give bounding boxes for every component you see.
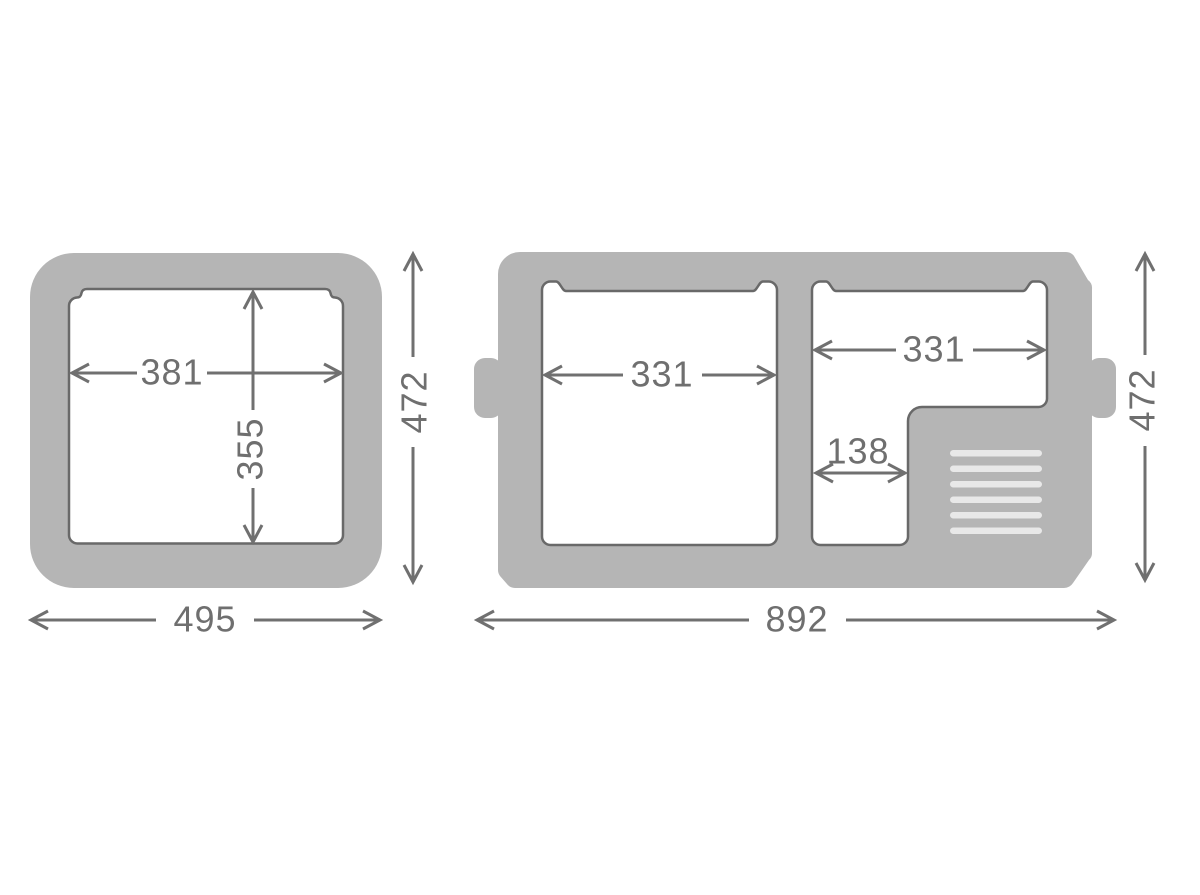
dim-label-right-outer-width: 892 bbox=[765, 599, 828, 640]
right-view-right-latch bbox=[1088, 358, 1116, 418]
left-view-cavity bbox=[69, 289, 343, 544]
dim-label-right-outer-height: 472 bbox=[1122, 368, 1163, 431]
dimension-diagram: 381 355 472 495 bbox=[0, 0, 1200, 895]
dim-label-outer-height: 472 bbox=[394, 370, 435, 433]
dim-label-inner-width: 381 bbox=[140, 352, 203, 393]
dimension-left-outer-width: 495 bbox=[31, 599, 380, 640]
dimension-right-outer-height: 472 bbox=[1122, 254, 1163, 580]
dim-label-left-compartment-width: 331 bbox=[630, 354, 693, 395]
left-view: 381 355 472 495 bbox=[30, 253, 435, 640]
dim-label-right-compartment-width: 331 bbox=[902, 329, 965, 370]
diagram-stage: 381 355 472 495 bbox=[0, 0, 1200, 895]
dimension-left-outer-height: 472 bbox=[394, 254, 435, 582]
right-view: 331 331 138 472 bbox=[474, 252, 1163, 640]
dim-label-outer-width: 495 bbox=[173, 599, 236, 640]
dim-label-inner-depth: 355 bbox=[230, 417, 271, 480]
right-view-left-latch bbox=[474, 358, 502, 418]
right-view-left-compartment bbox=[542, 282, 777, 546]
dim-label-narrow-width: 138 bbox=[826, 431, 889, 472]
dimension-right-outer-width: 892 bbox=[477, 599, 1114, 640]
